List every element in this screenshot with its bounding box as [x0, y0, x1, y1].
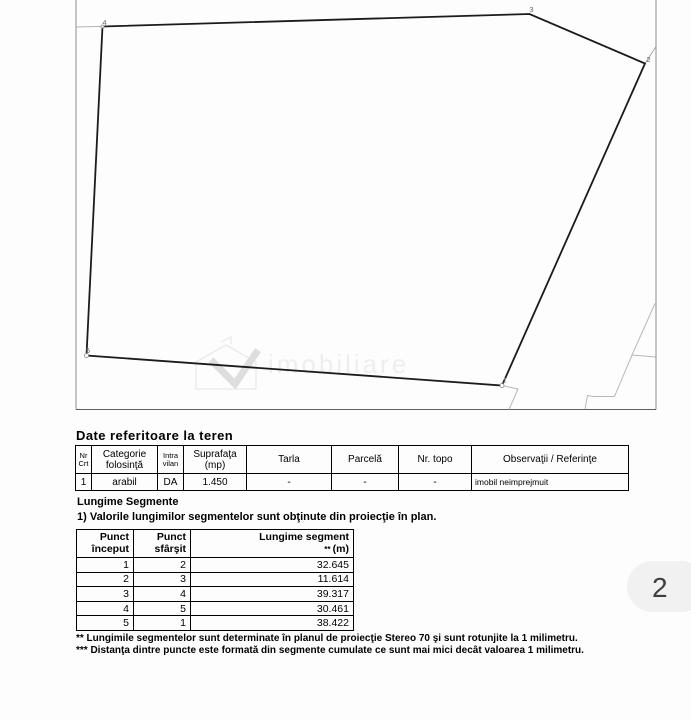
- svg-text:5: 5: [86, 346, 90, 355]
- svg-text:4: 4: [102, 18, 106, 27]
- svg-text:3: 3: [529, 5, 533, 14]
- svg-text:1: 1: [503, 376, 507, 385]
- svg-text:2: 2: [646, 55, 650, 64]
